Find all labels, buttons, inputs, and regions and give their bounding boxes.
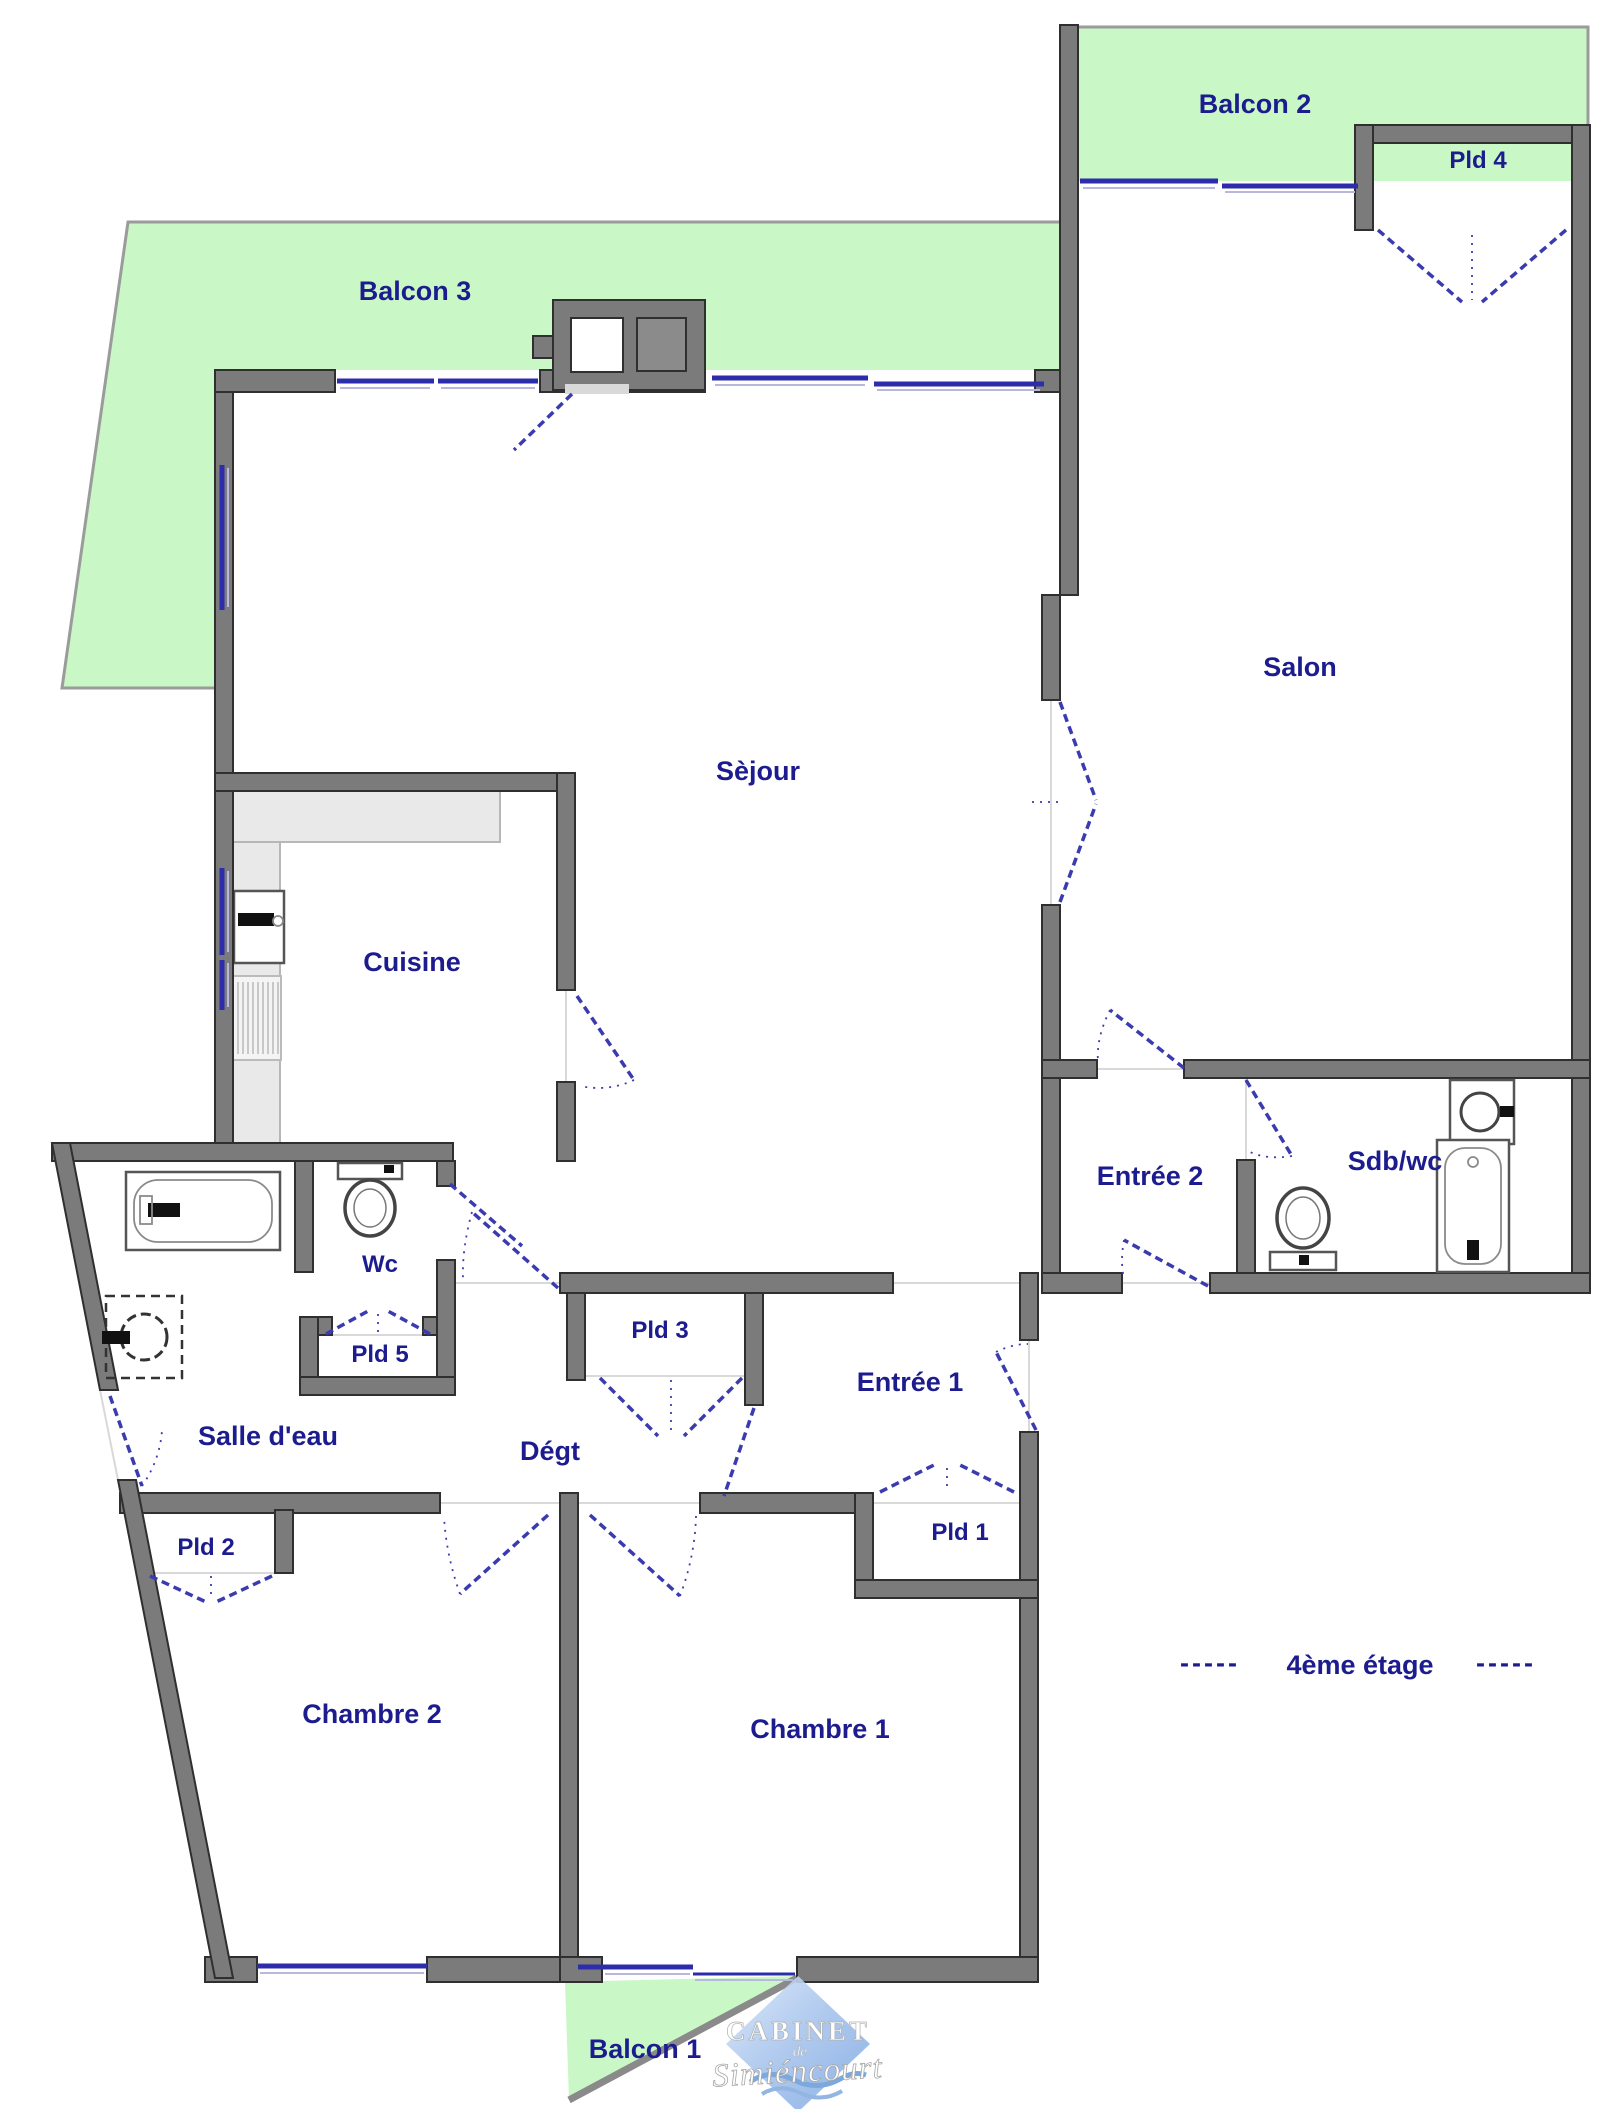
entree2-sdbwc-door xyxy=(1246,1080,1292,1156)
room-label-degt: Dégt xyxy=(520,1436,580,1466)
pld1-door xyxy=(880,1464,936,1492)
room-label-cuisine: Cuisine xyxy=(363,947,461,977)
degt-entree1-door xyxy=(724,1408,754,1496)
room-label-salledeau: Salle d'eau xyxy=(198,1421,338,1451)
floor-label: 4ème étage xyxy=(1286,1650,1433,1680)
room-label-pld2: Pld 2 xyxy=(177,1534,234,1561)
doors xyxy=(110,230,1566,1602)
floor-dash-right: ----- xyxy=(1476,1648,1536,1678)
room-label-balcon3: Balcon 3 xyxy=(359,276,472,306)
logo-text-cabinet: CABINET xyxy=(726,2016,870,2046)
chambre1-door xyxy=(590,1515,680,1596)
pld4-door xyxy=(1482,230,1566,302)
room-label-sejour: Sèjour xyxy=(716,756,801,786)
room-label-balcon1: Balcon 1 xyxy=(589,2034,702,2064)
kitchen-faucet-icon xyxy=(238,913,274,926)
room-label-wc: Wc xyxy=(362,1251,398,1278)
room-label-sdbwc: Sdb/wc xyxy=(1348,1146,1443,1176)
pld3-door xyxy=(684,1378,742,1436)
duct-block xyxy=(533,300,705,394)
toilet-icon xyxy=(338,1163,402,1236)
bathtub-icon xyxy=(1437,1140,1509,1272)
floor-plan-page: Balcon 3 Balcon 2 Pld 4 Salon Sèjour Cui… xyxy=(0,0,1600,2109)
room-label-pld1: Pld 1 xyxy=(931,1519,988,1546)
sejour-salon-door xyxy=(1060,702,1096,800)
room-label-balcon2: Balcon 2 xyxy=(1199,89,1312,119)
pld1-door xyxy=(958,1464,1014,1492)
slanted-wall-upper xyxy=(52,1143,118,1390)
washing-machine-icon xyxy=(1450,1080,1514,1144)
chambre2-door xyxy=(460,1515,548,1594)
floor-dash-left: ----- xyxy=(1180,1648,1240,1678)
pld4-door xyxy=(1378,230,1462,302)
floor-caption: ----- 4ème étage ----- xyxy=(1180,1648,1536,1680)
room-label-pld3: Pld 3 xyxy=(631,1317,688,1344)
room-label-chambre2: Chambre 2 xyxy=(302,1699,442,1729)
room-label-salon: Salon xyxy=(1263,652,1337,682)
room-label-pld4: Pld 4 xyxy=(1449,147,1507,174)
room-label-pld5: Pld 5 xyxy=(351,1341,408,1368)
kitchen-sink-icon xyxy=(234,891,284,963)
balcon-2-area xyxy=(1078,28,1588,181)
pld2-door xyxy=(216,1576,272,1602)
salon-entree2-door xyxy=(1110,1010,1184,1068)
wc-door xyxy=(450,1184,522,1246)
entree2-entrance-door xyxy=(1124,1240,1208,1286)
duct-door xyxy=(514,394,572,450)
sejour-degt-door xyxy=(472,1212,558,1288)
pld3-door xyxy=(600,1378,658,1436)
room-label-entree2: Entrée 2 xyxy=(1097,1161,1204,1191)
logo-text-simiencourt: Simiéncourt xyxy=(711,2050,883,2095)
toilet-icon xyxy=(1270,1188,1336,1270)
sejour-salon-door xyxy=(1060,804,1096,902)
balcon-3-area xyxy=(62,222,1060,688)
floor-plan: Balcon 3 Balcon 2 Pld 4 Salon Sèjour Cui… xyxy=(0,0,1600,2109)
cuisine-door xyxy=(577,996,634,1080)
room-label-chambre1: Chambre 1 xyxy=(750,1714,890,1744)
salledeau-door xyxy=(110,1396,142,1486)
room-label-entree1: Entrée 1 xyxy=(857,1367,964,1397)
bathtub-icon xyxy=(126,1172,280,1250)
